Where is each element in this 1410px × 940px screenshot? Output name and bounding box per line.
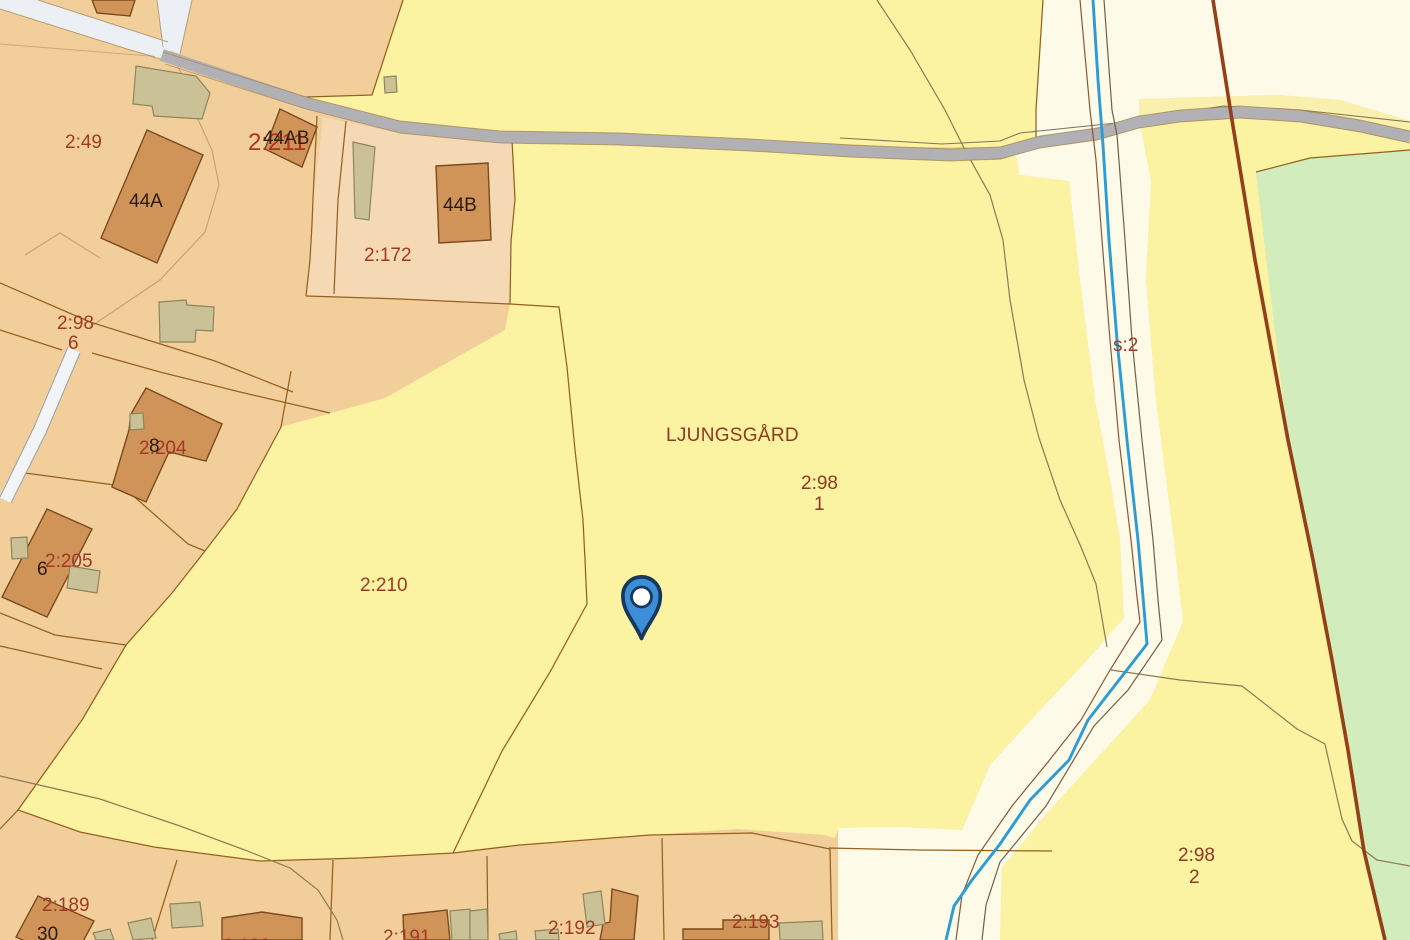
svg-text:2:49: 2:49 [65,132,102,153]
svg-text:6: 6 [68,333,79,354]
svg-text:s:2: s:2 [1113,335,1138,356]
svg-text:2:189: 2:189 [42,895,90,916]
svg-text:2:98: 2:98 [801,473,838,494]
svg-text:2:193: 2:193 [732,912,780,933]
svg-text:2:190: 2:190 [223,936,271,940]
svg-text:2:98: 2:98 [1178,845,1215,866]
svg-text:2:204: 2:204 [139,438,187,459]
svg-text:30: 30 [37,924,58,940]
svg-text:2:210: 2:210 [360,575,408,596]
svg-text:2: 2 [1189,867,1200,888]
svg-text:LJUNGSGÅRD: LJUNGSGÅRD [666,425,799,446]
svg-text:6: 6 [37,559,48,580]
svg-text:2:172: 2:172 [364,245,412,266]
svg-text:44A: 44A [129,191,163,212]
svg-text:44B: 44B [443,195,477,216]
svg-text:1: 1 [814,494,825,515]
svg-text:44AB: 44AB [263,128,309,149]
svg-text:2:191: 2:191 [383,927,431,940]
svg-text:2:205: 2:205 [45,551,93,572]
svg-text:2:98: 2:98 [57,313,94,334]
svg-text:2:192: 2:192 [548,918,596,939]
svg-text:8: 8 [149,436,160,457]
